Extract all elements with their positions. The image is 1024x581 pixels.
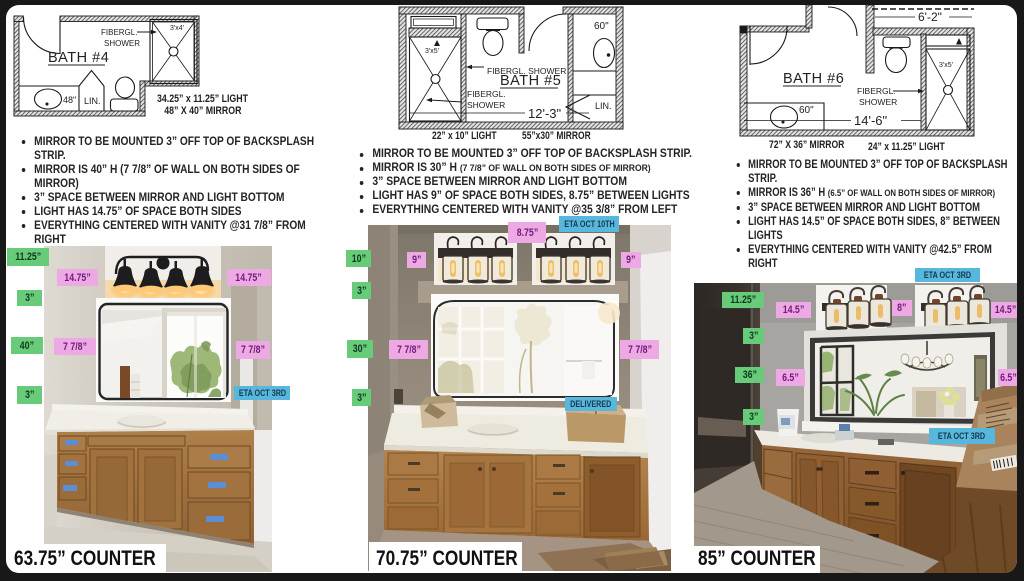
svg-text:SHOWER: SHOWER — [104, 39, 140, 48]
svg-text:BATH #4: BATH #4 — [48, 50, 109, 66]
svg-text:SHOWER: SHOWER — [467, 100, 505, 110]
svg-text:60": 60" — [799, 105, 814, 116]
svg-text:FIBERGL. SHOWER: FIBERGL. SHOWER — [487, 66, 566, 76]
svg-text:BATH #6: BATH #6 — [783, 71, 844, 87]
svg-text:48": 48" — [63, 95, 76, 105]
svg-text:3'x5': 3'x5' — [425, 48, 439, 55]
svg-text:LIN.: LIN. — [595, 101, 612, 111]
svg-text:6'-2": 6'-2" — [918, 10, 942, 24]
svg-text:FIBERGL.: FIBERGL. — [857, 86, 896, 96]
svg-text:60": 60" — [594, 21, 609, 32]
svg-text:3'x5': 3'x5' — [939, 62, 953, 69]
svg-text:3'x4': 3'x4' — [170, 25, 184, 32]
svg-text:12'-3": 12'-3" — [528, 106, 562, 121]
svg-text:LIN.: LIN. — [84, 96, 101, 106]
svg-text:FIBERGL.: FIBERGL. — [101, 28, 137, 37]
svg-text:FIBERGL.: FIBERGL. — [467, 89, 506, 99]
svg-text:SHOWER: SHOWER — [859, 97, 897, 107]
svg-text:14'-6": 14'-6" — [854, 113, 888, 128]
